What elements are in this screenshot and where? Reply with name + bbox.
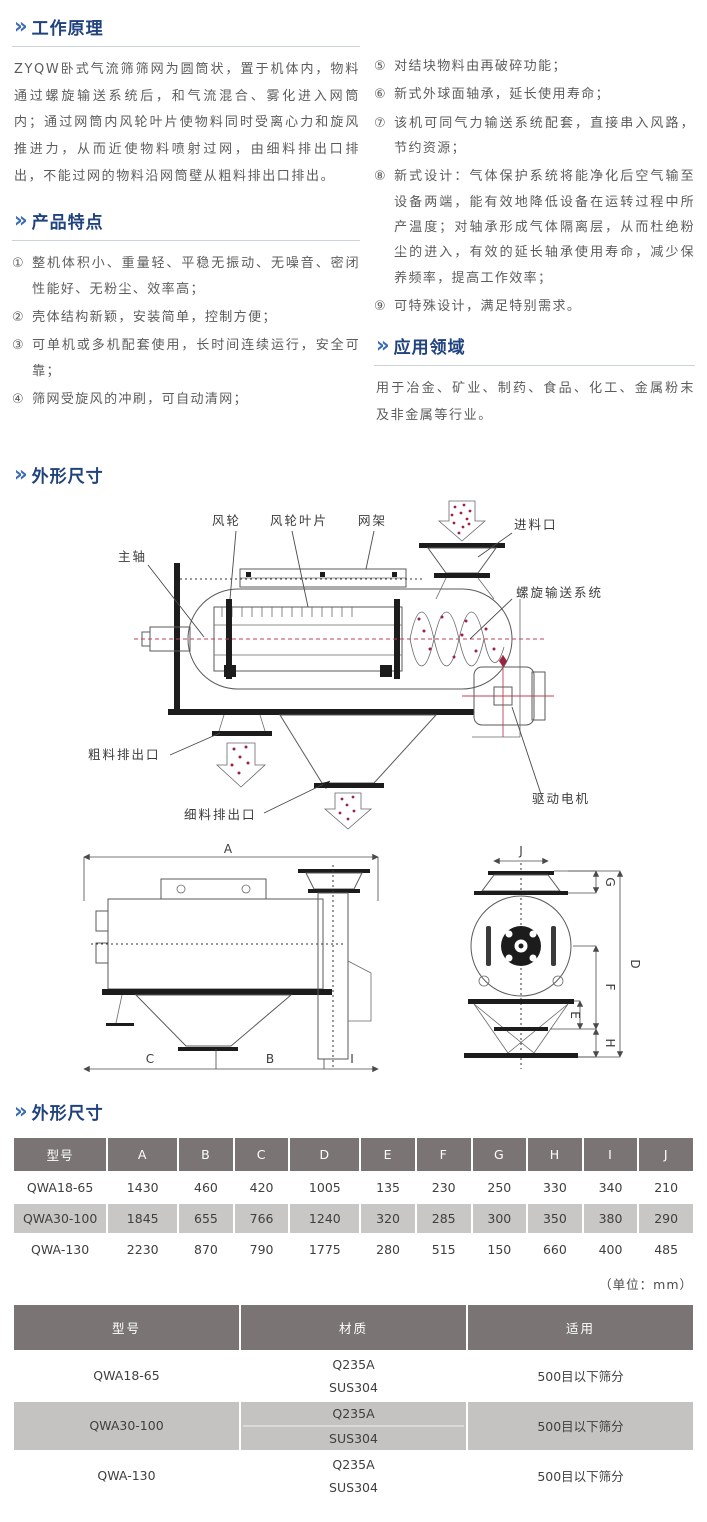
feature-item: ⑧ 新式设计：气体保护系统将能净化后空气输至设备两端，能有效地降低设备在运转过程…	[374, 164, 695, 291]
dim-E: E	[568, 1011, 582, 1019]
feature-item: ② 壳体结构新颖，安装简单，控制方便；	[12, 305, 360, 330]
cell-application: 500目以下筛分	[468, 1402, 693, 1450]
section-chevron-icon: »	[14, 16, 25, 37]
feature-text: 该机可同气力输送系统配套，直接串入风路，节约资源；	[394, 111, 695, 162]
dim-B: B	[266, 1052, 274, 1066]
material-line: Q235A	[243, 1353, 464, 1376]
cell-model: QWA30-100	[14, 1204, 106, 1233]
cell-value: 1430	[108, 1173, 177, 1202]
cell-value: 2230	[108, 1235, 177, 1264]
section-title-features: 产品特点	[32, 208, 104, 233]
cell-value: 655	[179, 1204, 233, 1233]
col-header-application: 适用	[468, 1305, 693, 1350]
dim-F: F	[603, 983, 617, 990]
cell-model: QWA-130	[14, 1452, 239, 1500]
feature-number: ⑧	[374, 164, 387, 291]
col-header-B: B	[179, 1138, 233, 1171]
machine-schematic-drawing: 主轴 风轮 风轮叶片 网架 进料口 螺旋输送系统 粗料排出口 细料排出口 驱动电…	[74, 499, 634, 835]
feature-number: ⑤	[374, 54, 387, 79]
dimension-drawing: A	[12, 841, 695, 1081]
feature-text: 新式外球面轴承，延长使用寿命；	[394, 82, 610, 107]
section-header-outline-2: » 外形尺寸	[12, 1095, 695, 1126]
section-title-working-principle: 工作原理	[32, 14, 104, 39]
col-header-F: F	[417, 1138, 471, 1171]
outline-section-2: » 外形尺寸 型号 A B C D E F G H I J	[12, 1095, 695, 1502]
section-chevron-icon: »	[14, 1101, 25, 1122]
label-main-shaft: 主轴	[118, 549, 147, 564]
cell-value: 340	[584, 1173, 638, 1202]
feature-text: 可单机或多机配套使用，长时间连续运行，安全可靠；	[32, 333, 360, 384]
dimension-views: A	[66, 841, 641, 1081]
feature-text: 整机体积小、重量轻、平稳无振动、无噪音、密闭性能好、无粉尘、效率高；	[32, 251, 360, 302]
col-header-model: 型号	[14, 1138, 106, 1171]
feature-text: 壳体结构新颖，安装简单，控制方便；	[32, 305, 277, 330]
label-feed-inlet: 进料口	[514, 517, 558, 532]
feature-item: ① 整机体积小、重量轻、平稳无振动、无噪音、密闭性能好、无粉尘、效率高；	[12, 251, 360, 302]
cell-value: 870	[179, 1235, 233, 1264]
col-header-material: 材质	[241, 1305, 466, 1350]
cell-value: 766	[235, 1204, 289, 1233]
col-header-H: H	[528, 1138, 582, 1171]
material-line: SUS304	[243, 1376, 464, 1399]
top-columns: » 工作原理 ZYQW卧式气流筛筛网为圆筒状，置于机体内，物料通过螺旋输送系统后…	[12, 10, 695, 444]
working-principle-text: ZYQW卧式气流筛筛网为圆筒状，置于机体内，物料通过螺旋输送系统后，和气流混合、…	[14, 57, 360, 190]
cell-application: 500目以下筛分	[468, 1352, 693, 1400]
material-line: Q235A	[243, 1402, 464, 1427]
cell-model: QWA18-65	[14, 1352, 239, 1400]
unit-note: （单位：mm）	[12, 1274, 693, 1293]
feature-number: ⑦	[374, 111, 387, 162]
label-screw-system: 螺旋输送系统	[516, 585, 603, 600]
dimension-table: 型号 A B C D E F G H I J QWA18-65 1430 4	[12, 1136, 695, 1266]
label-drive-motor: 驱动电机	[532, 791, 590, 806]
feature-item: ⑤ 对结块物料由再破碎功能；	[374, 54, 695, 79]
product-document-page: » 工作原理 ZYQW卧式气流筛筛网为圆筒状，置于机体内，物料通过螺旋输送系统后…	[0, 0, 707, 1522]
dim-A: A	[224, 842, 233, 856]
dimension-table-header-row: 型号 A B C D E F G H I J	[14, 1138, 693, 1171]
feature-item: ④ 筛网受旋风的冲刷，可自动清网；	[12, 387, 360, 412]
cell-model: QWA-130	[14, 1235, 106, 1264]
material-line: SUS304	[243, 1476, 464, 1499]
cell-model: QWA18-65	[14, 1173, 106, 1202]
cell-value: 150	[473, 1235, 527, 1264]
cell-value: 1240	[290, 1204, 359, 1233]
cell-value: 420	[235, 1173, 289, 1202]
machine-schematic: 主轴 风轮 风轮叶片 网架 进料口 螺旋输送系统 粗料排出口 细料排出口 驱动电…	[12, 499, 695, 835]
cell-value: 660	[528, 1235, 582, 1264]
section-title-outline-2: 外形尺寸	[32, 1099, 104, 1124]
cell-value: 250	[473, 1173, 527, 1202]
material-table-header-row: 型号 材质 适用	[14, 1305, 693, 1350]
section-header-features: » 产品特点	[12, 204, 360, 241]
feature-item: ⑥ 新式外球面轴承，延长使用寿命；	[374, 82, 695, 107]
label-wind-blade: 风轮叶片	[270, 513, 328, 528]
cell-value: 210	[639, 1173, 693, 1202]
section-header-working-principle: » 工作原理	[12, 10, 360, 47]
cell-materials: Q235A SUS304	[241, 1452, 466, 1500]
cell-value: 280	[361, 1235, 415, 1264]
outline-section-1: » 外形尺寸	[12, 458, 695, 1081]
feature-text: 可特殊设计，满足特别需求。	[394, 294, 581, 319]
label-wind-wheel: 风轮	[212, 513, 241, 528]
col-header-E: E	[361, 1138, 415, 1171]
table-row: QWA-130 2230 870 790 1775 280 515 150 66…	[14, 1235, 693, 1264]
end-view: J	[464, 844, 641, 1069]
feature-text: 筛网受旋风的冲刷，可自动清网；	[32, 387, 248, 412]
feature-text: 新式设计：气体保护系统将能净化后空气输至设备两端，能有效地降低设备在运转过程中所…	[394, 164, 695, 291]
table-row: QWA-130 Q235A SUS304 500目以下筛分	[14, 1452, 693, 1500]
label-fine-outlet: 细料排出口	[184, 807, 257, 822]
cell-value: 285	[417, 1204, 471, 1233]
cell-value: 460	[179, 1173, 233, 1202]
cell-value: 485	[639, 1235, 693, 1264]
cell-value: 1775	[290, 1235, 359, 1264]
col-header-A: A	[108, 1138, 177, 1171]
feature-item: ⑦ 该机可同气力输送系统配套，直接串入风路，节约资源；	[374, 111, 695, 162]
side-view: A	[84, 842, 378, 1069]
dim-G: G	[603, 877, 617, 886]
feature-text: 对结块物料由再破碎功能；	[394, 54, 567, 79]
cell-value: 230	[417, 1173, 471, 1202]
base-beam	[168, 709, 474, 715]
dim-I: I	[350, 1052, 354, 1066]
cell-value: 1005	[290, 1173, 359, 1202]
cell-value: 1845	[108, 1204, 177, 1233]
fine-outlet	[280, 715, 436, 829]
feature-number: ①	[12, 251, 25, 302]
feature-number: ④	[12, 387, 25, 412]
feature-number: ②	[12, 305, 25, 330]
cell-value: 320	[361, 1204, 415, 1233]
feature-item: ③ 可单机或多机配套使用，长时间连续运行，安全可靠；	[12, 333, 360, 384]
feature-item: ⑨ 可特殊设计，满足特别需求。	[374, 294, 695, 319]
dim-H: H	[603, 1038, 617, 1047]
feature-list-right: ⑤ 对结块物料由再破碎功能； ⑥ 新式外球面轴承，延长使用寿命； ⑦ 该机可同气…	[374, 54, 695, 319]
feed-arrow	[439, 501, 485, 541]
screen-mesh-hatch	[222, 607, 352, 617]
material-line: SUS304	[243, 1427, 464, 1450]
dim-J: J	[518, 844, 523, 858]
label-net-frame: 网架	[358, 513, 387, 528]
section-title-outline-1: 外形尺寸	[32, 462, 104, 487]
section-title-application: 应用领域	[394, 333, 466, 358]
col-header-model: 型号	[14, 1305, 239, 1350]
coarse-outlet	[212, 715, 272, 787]
feed-inlet-funnel	[419, 543, 505, 599]
table-row: QWA18-65 1430 460 420 1005 135 230 250 3…	[14, 1173, 693, 1202]
section-chevron-icon: »	[14, 464, 25, 485]
left-column: » 工作原理 ZYQW卧式气流筛筛网为圆筒状，置于机体内，物料通过螺旋输送系统后…	[12, 10, 360, 444]
feature-list-left: ① 整机体积小、重量轻、平稳无振动、无噪音、密闭性能好、无粉尘、效率高； ② 壳…	[12, 251, 360, 412]
cell-value: 330	[528, 1173, 582, 1202]
application-text: 用于冶金、矿业、制药、食品、化工、金属粉末及非金属等行业。	[376, 376, 695, 429]
col-header-D: D	[290, 1138, 359, 1171]
cell-materials: Q235A SUS304	[241, 1402, 466, 1450]
cell-materials: Q235A SUS304	[241, 1352, 466, 1400]
table-row: QWA18-65 Q235A SUS304 500目以下筛分	[14, 1352, 693, 1400]
table-row: QWA30-100 Q235A SUS304 500目以下筛分	[14, 1402, 693, 1450]
section-header-outline-1: » 外形尺寸	[12, 458, 695, 489]
col-header-C: C	[235, 1138, 289, 1171]
section-chevron-icon: »	[376, 335, 387, 356]
cell-value: 290	[639, 1204, 693, 1233]
dim-C: C	[146, 1052, 154, 1066]
cell-application: 500目以下筛分	[468, 1452, 693, 1500]
section-header-application: » 应用领域	[374, 329, 695, 366]
right-column: ⑤ 对结块物料由再破碎功能； ⑥ 新式外球面轴承，延长使用寿命； ⑦ 该机可同气…	[374, 10, 695, 444]
col-header-G: G	[473, 1138, 527, 1171]
label-coarse-outlet: 粗料排出口	[88, 747, 161, 762]
cell-value: 380	[584, 1204, 638, 1233]
cell-model: QWA30-100	[14, 1402, 239, 1450]
feature-number: ⑨	[374, 294, 387, 319]
cell-value: 400	[584, 1235, 638, 1264]
cell-value: 135	[361, 1173, 415, 1202]
col-header-J: J	[639, 1138, 693, 1171]
cell-value: 515	[417, 1235, 471, 1264]
material-table: 型号 材质 适用 QWA18-65 Q235A SUS304 500目以下筛分 …	[12, 1303, 695, 1502]
dim-D: D	[628, 959, 641, 968]
support-column	[174, 563, 180, 711]
cell-value: 300	[473, 1204, 527, 1233]
material-line: Q235A	[243, 1453, 464, 1476]
cell-value: 350	[528, 1204, 582, 1233]
table-row: QWA30-100 1845 655 766 1240 320 285 300 …	[14, 1204, 693, 1233]
col-header-I: I	[584, 1138, 638, 1171]
drive-motor	[462, 655, 554, 737]
cell-value: 790	[235, 1235, 289, 1264]
feature-number: ③	[12, 333, 25, 384]
section-chevron-icon: »	[14, 210, 25, 231]
feature-number: ⑥	[374, 82, 387, 107]
